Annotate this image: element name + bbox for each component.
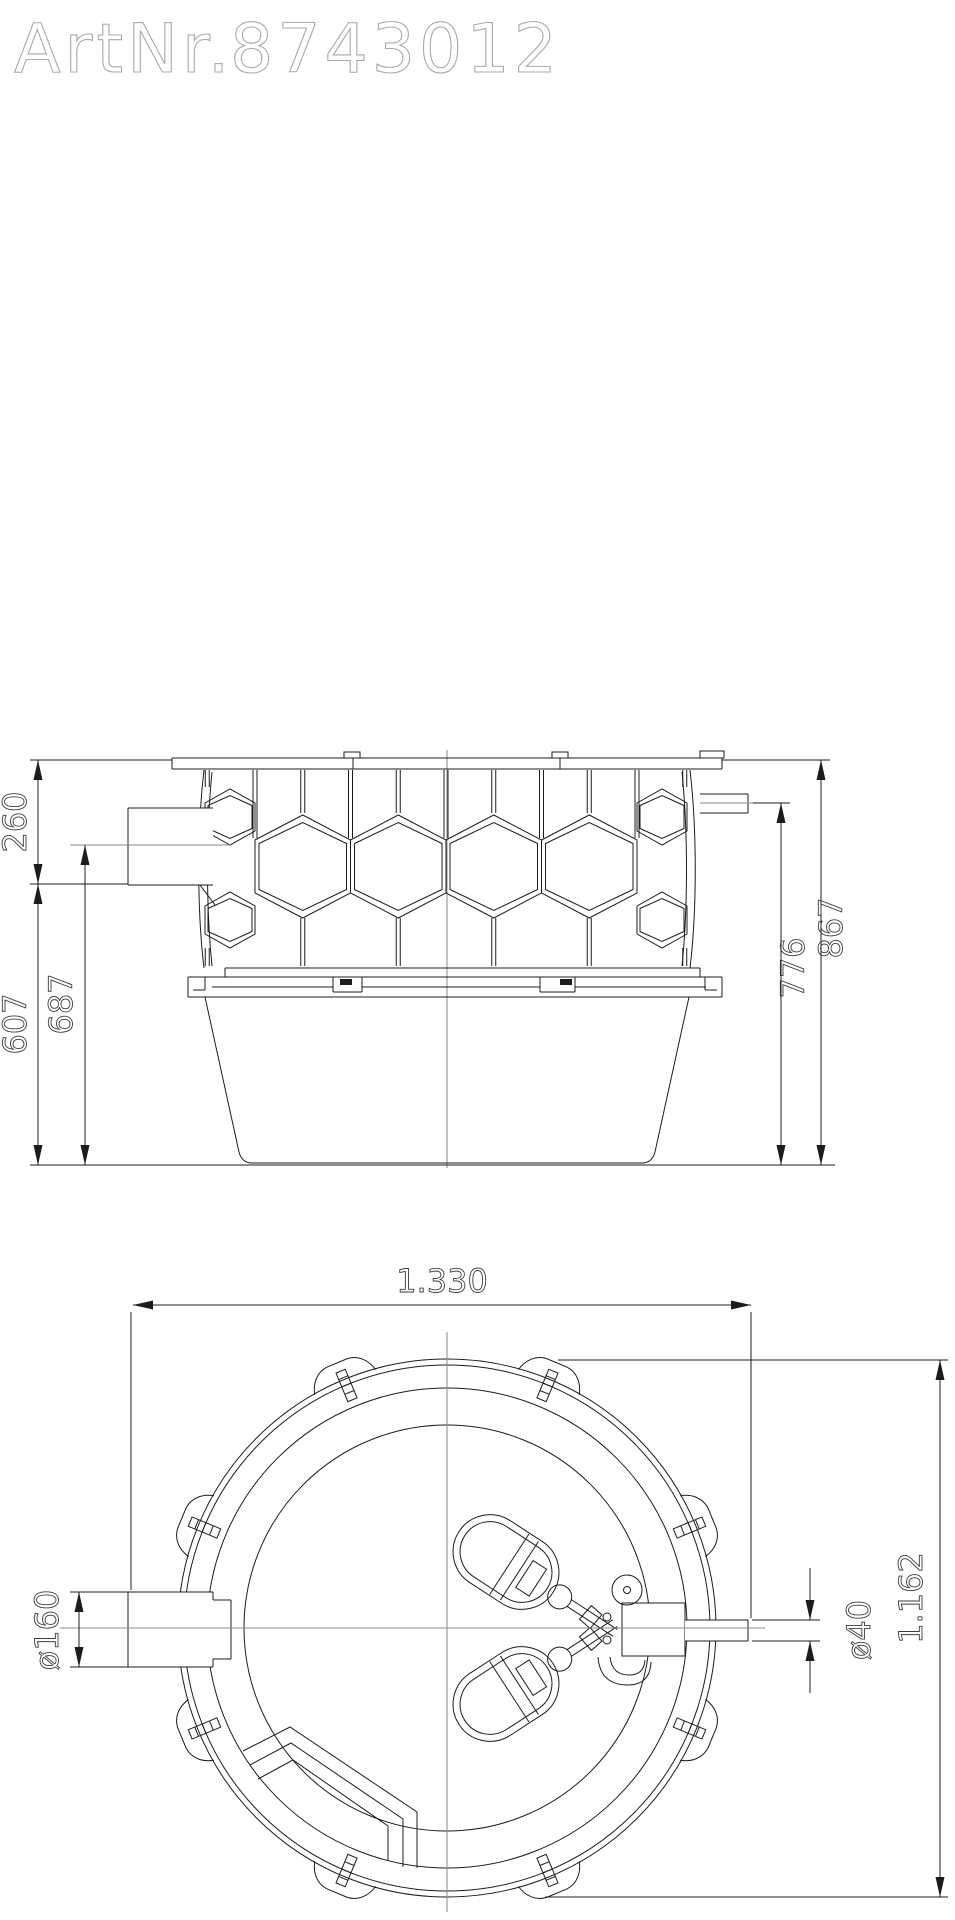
- flange-clip-mark: [560, 979, 572, 985]
- dim-776: 776: [774, 937, 812, 998]
- outlet-pipe-plan: [685, 1620, 748, 1641]
- hook-bracket: [598, 1657, 651, 1685]
- drawing-svg: ArtNr. 8743012: [0, 0, 955, 1920]
- dim-160: ø160: [28, 1590, 66, 1671]
- bottom-flange: [188, 968, 722, 997]
- title-label: ArtNr.: [14, 10, 233, 89]
- dim-1330: 1.330: [396, 1262, 488, 1300]
- honeycomb-pattern: [205, 770, 687, 966]
- dim-687: 687: [42, 973, 80, 1034]
- drawing-title: ArtNr. 8743012: [14, 10, 561, 89]
- inlet-pipe-side: [128, 808, 215, 905]
- float-switch-upper: [439, 1500, 635, 1663]
- dim-260: 260: [0, 791, 34, 852]
- side-view: 260 607 687 776 867: [0, 750, 850, 1168]
- plan-view: 1.330 ø160 ø40 1.162: [28, 1262, 948, 1912]
- dim-867: 867: [812, 897, 850, 958]
- vent-circle: [612, 1575, 642, 1605]
- float-switch-lower: [439, 1592, 635, 1755]
- inlet-pipe-plan: [128, 1592, 231, 1667]
- dim-1162: 1.162: [892, 1552, 930, 1644]
- dim-607: 607: [0, 993, 34, 1054]
- technical-drawing-page: ArtNr. 8743012: [0, 0, 955, 1920]
- title-number: 8743012: [230, 10, 561, 89]
- baffle-channel: [243, 1727, 417, 1868]
- tank-lid: [172, 751, 724, 769]
- flange-clip-mark: [340, 979, 352, 985]
- dim-40: ø40: [840, 1600, 878, 1660]
